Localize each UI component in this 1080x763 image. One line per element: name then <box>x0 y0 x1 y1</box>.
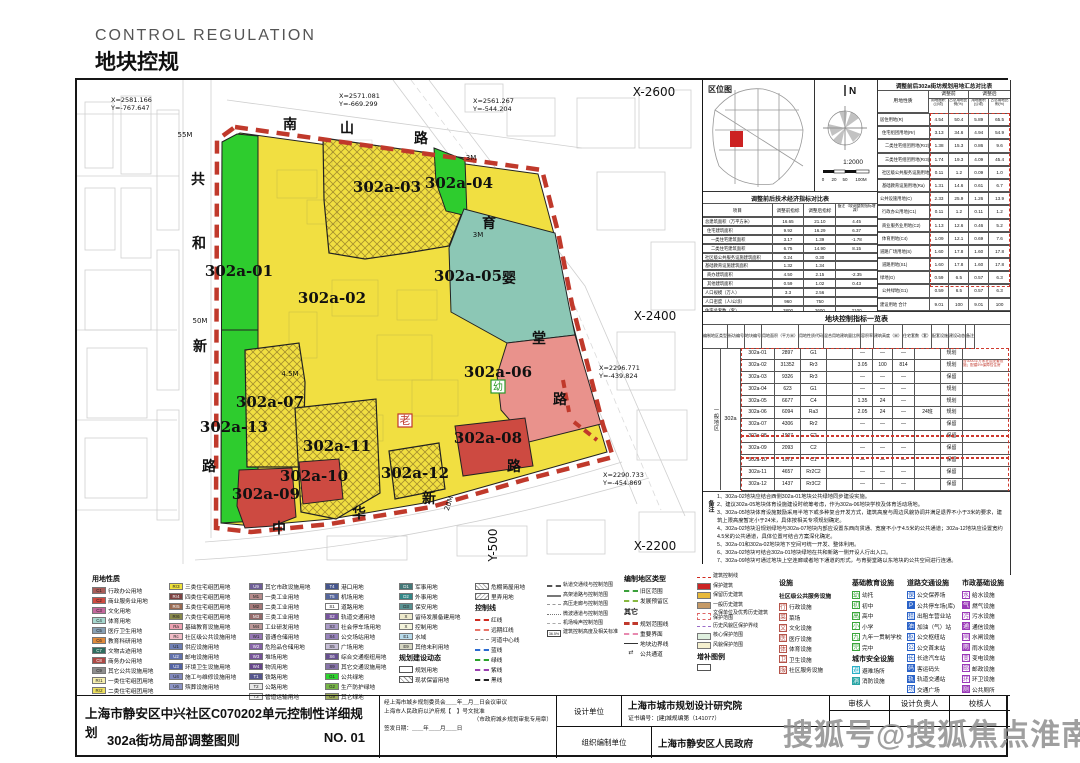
legend-item-label: 公交首末站 <box>917 643 945 652</box>
row-label: 体育用地(C4) <box>878 233 930 245</box>
facility-icon: 卫 <box>779 655 787 663</box>
facility <box>915 419 941 430</box>
legend-item: C6教育科研用地 <box>92 636 168 645</box>
legend-item: 文保单位及优秀历史建筑保护范围 <box>697 611 775 622</box>
traffic-facility-icon: 租 <box>907 612 915 620</box>
landuse-code: C2 <box>801 443 827 454</box>
row-label: 住宅组团用地(Rr) <box>878 127 930 139</box>
legend-item-label: 公交枢纽站 <box>917 632 945 641</box>
legend-item-label: 三类住宅组团用地 <box>185 582 231 591</box>
legend-item: Rc社区级公共设施用地 <box>169 632 247 641</box>
legend-item: 一般历史建筑 <box>697 601 775 609</box>
heritage-swatch <box>697 592 711 599</box>
row-label: 商办建筑面积 <box>703 271 773 279</box>
legend-item: 气燃气设施 <box>962 601 1008 610</box>
legend-item: C4体育用地 <box>92 616 168 625</box>
legend-item: 小小学 <box>852 622 904 631</box>
cell: 1.34 <box>804 262 836 270</box>
notes-list: 1、302a-02地块应结合西侧302a-01地块公共绿地同步建设实施。2、建议… <box>717 494 1007 565</box>
legend-item-label: 变电设施 <box>972 653 995 662</box>
education-facility-icon: 高 <box>852 612 860 620</box>
legend-item-label: 公共停车场(库) <box>917 601 955 610</box>
legend-item: 发展预留区 <box>624 596 696 605</box>
summary-sub-header: 用地面积(公顷) <box>969 99 989 113</box>
table-row: 302a-02 31352 Rr3 3.05 100 814 规划 含3000平… <box>741 360 1011 372</box>
road-label-nanshan: 南 <box>283 116 297 133</box>
table-row: 302a-11 4657 Rr2C2 — — — 保留 <box>741 467 1011 479</box>
table-row: 三类住宅组团用地(Rr3) 1.74 19.3 4.09 45.4 <box>878 153 1010 166</box>
legend-item-label: 危棚简屋用地 <box>491 582 525 591</box>
legend-item: 风貌保护范围 <box>697 641 775 649</box>
parcel-id: 302a-01 <box>741 348 775 359</box>
parcel-area: 1907 <box>775 431 801 442</box>
legend-item-label: 社区级公共设施用地 <box>185 632 236 641</box>
line-swatch <box>547 604 561 605</box>
legend-item: S1道路用地 <box>325 602 397 611</box>
landuse-swatch: X <box>399 613 413 620</box>
table-row: 绿地(G) 0.59 6.5 0.57 6.3 <box>878 271 1010 284</box>
legend-item: M3三类工业用地 <box>249 612 323 621</box>
legend-header: 市政基础设施 <box>962 578 1008 588</box>
legend-item-label: 教育科研用地 <box>108 636 142 645</box>
parcel-table-header: 编制地区类型 街坊编号 地块编号 用地面积（平方米） 用地性质代码 混合用地建筑… <box>703 324 1010 349</box>
road-label-zhonghuaxin: 新 <box>422 490 436 507</box>
column-header: 混合用地建筑量比例 <box>824 325 861 349</box>
row-label: 商业服务业用地(C2) <box>878 220 930 232</box>
mix-ratio <box>827 384 853 395</box>
legend-item-label: 给水设施 <box>972 590 995 599</box>
legend-item-label: 公交场站用地 <box>341 632 375 641</box>
height-limit: — <box>873 431 893 442</box>
legend-item: 地块边界线 <box>624 639 696 648</box>
legend-item-label: 留待发展备建用地 <box>415 612 461 621</box>
landuse-swatch: C2 <box>92 597 106 604</box>
parcel-area: 1437 <box>775 479 801 490</box>
far: — <box>853 479 873 490</box>
far: 1.35 <box>853 396 873 407</box>
legend-item-label: 殡葬设施用地 <box>185 682 219 691</box>
facility <box>915 467 941 478</box>
landuse-swatch: U4 <box>169 673 183 680</box>
remark <box>963 419 1009 430</box>
legend-item-label: 文物古迹用地 <box>108 646 142 655</box>
legend-col-control-2: 轨道交通线与控制范围高架道路与控制范围高压走廊与控制范围微波通道与控制范围机场噪… <box>547 582 623 637</box>
municipal-facility-icon: 污 <box>962 612 970 620</box>
legend-item-label: 长途汽车站 <box>917 653 945 662</box>
landuse-swatch: D3 <box>399 603 413 610</box>
table-row: 基础教育设施用地(Ra) 1.31 14.6 0.61 6.7 <box>878 179 1010 192</box>
page-title: 地块控规 <box>95 46 179 76</box>
legend-item-label: 建筑控制线 <box>713 574 771 580</box>
row-label: 行政办公用地(C1) <box>878 206 930 218</box>
table-row: 人口密度（人/公顷） 960 750 <box>703 297 877 306</box>
table-row: 商办建筑面积 4.50 2.15 -2.35 <box>703 270 877 279</box>
cell: -1.78 <box>836 236 877 244</box>
safety-facility-icon: 消 <box>852 677 860 685</box>
approval-line: （市政府城乡规划审批专用章） <box>384 716 552 725</box>
legend-col-municipal: 市政基础设施 水给水设施气燃气设施污污水设施通通信设施闸水闸设施雨雨水设施变变电… <box>962 577 1008 694</box>
legend-item: S6综合交通枢纽用地 <box>325 652 397 661</box>
cell: 1.60 <box>930 259 950 271</box>
legend-item: 绿线 <box>475 655 545 664</box>
legend-header: 设施 <box>779 578 849 588</box>
parcel-area: 6094 <box>775 407 801 418</box>
page-eyebrow: CONTROL REGULATION <box>95 27 316 45</box>
column-header: 街坊编号 <box>728 325 745 349</box>
table-row: 公共绿地(G1) 0.59 6.5 0.57 6.3 <box>878 284 1010 297</box>
road-label-nanshan: 路 <box>414 130 429 147</box>
landuse-swatch: Ra <box>169 623 183 630</box>
table-row: 其他建筑面积 0.59 1.02 0.43 <box>703 279 877 288</box>
table-row: 人口规模（万人） 3.3 2.56 <box>703 288 877 297</box>
landuse-swatch: Rr3 <box>169 583 183 590</box>
cell <box>836 298 877 306</box>
table-row: 建设用地 合计 9.01 100 9.01 100 <box>878 298 1010 311</box>
legend-item: 码客运码头 <box>907 664 961 673</box>
table-row: 体育用地(C4) 1.09 12.1 0.69 7.6 <box>878 232 1010 245</box>
legend-item-label: 医疗设施 <box>789 634 812 643</box>
landuse-swatch: U9 <box>249 583 263 590</box>
legend-item: 体体育设施 <box>779 644 849 653</box>
landuse-swatch: X <box>399 623 413 630</box>
legend-header: 编制地区类型 <box>624 574 696 584</box>
table-row: 基础教育设施建筑面积 1.32 1.34 <box>703 261 877 270</box>
municipal-facility-icon: 气 <box>962 601 970 609</box>
parcel-label-302a-02: 302a-02 <box>298 289 366 307</box>
facility <box>915 455 941 466</box>
parcel-label-302a-09: 302a-09 <box>232 485 300 503</box>
legend-item-label: 红线 <box>491 615 502 624</box>
legend-item: 轨轨道交通站 <box>907 674 961 683</box>
municipal-facility-icon: 邮 <box>962 664 970 672</box>
road-width-label: 4.5M <box>281 370 298 378</box>
cell: 0.59 <box>930 272 950 284</box>
parcel-area: 623 <box>775 384 801 395</box>
legend-item: X留待发展备建用地 <box>399 612 473 621</box>
column-header: 编制地区类型 <box>703 325 728 349</box>
height-limit: — <box>873 443 893 454</box>
municipal-facility-icon: 变 <box>962 654 970 662</box>
mix-ratio <box>827 372 853 383</box>
north-label: N <box>849 86 856 97</box>
landuse-swatch: W2 <box>249 643 263 650</box>
parcel-id: 302a-12 <box>741 479 775 490</box>
coord-label: X=2290.733 <box>603 471 644 479</box>
location-inset-map: 区位图 <box>703 80 815 192</box>
legend-item: 枢公交枢纽站 <box>907 632 961 641</box>
table-row: 302a-06 6094 Ra3 2.05 24 — 24班 规划 <box>741 407 1011 419</box>
legend-item-label: 其它交通设施用地 <box>341 662 387 671</box>
parcel-302a-08 <box>455 418 533 476</box>
cell: 50.4 <box>949 114 969 126</box>
table-row: 302a-12 1437 Rr3C2 — — — 保留 <box>741 479 1011 491</box>
cell: 0.61 <box>969 180 989 192</box>
legend-item-label: 其他未利用地 <box>415 642 449 651</box>
legend-item-label: 重要界面 <box>640 629 663 638</box>
legend-item-label: 雨水设施 <box>972 643 995 652</box>
heritage-swatch <box>697 583 711 590</box>
row-label: 居住用地(R) <box>878 114 930 126</box>
row-label: 道路广场用地(S) <box>878 246 930 258</box>
cell: 0.11 <box>969 206 989 218</box>
legend-item-label: 地块边界线 <box>640 639 668 648</box>
checker-label: 校核人 <box>950 696 1010 711</box>
far: — <box>853 348 873 359</box>
legend-item: W4物流用地 <box>249 662 323 671</box>
cell: 6.3 <box>989 272 1010 284</box>
parcel-id: 302a-05 <box>741 396 775 407</box>
row-label: 一类住宅建筑面积 <box>703 236 773 244</box>
sheet-number: NO. 01 <box>324 730 365 745</box>
landuse-swatch: U3 <box>169 663 183 670</box>
legend-item-label: 保留历史建筑 <box>713 593 771 599</box>
legend-item: 黑线 <box>475 675 545 684</box>
landuse-swatch: C4 <box>92 617 106 624</box>
municipal-facility-icon: 闸 <box>962 633 970 641</box>
landuse-swatch: C1 <box>92 587 106 594</box>
landuse-code: Rr3 <box>801 372 827 383</box>
row-label: 公共绿地(G1) <box>878 285 930 297</box>
parcel-label-302a-08: 302a-08 <box>454 429 522 447</box>
traffic-facility-icon: P <box>907 601 915 609</box>
scale-tick: 0 <box>822 177 825 182</box>
legend-item: Rr5五类住宅组团用地 <box>169 602 247 611</box>
location-inset-title: 区位图 <box>708 84 732 94</box>
landuse-code: Rr2 <box>801 419 827 430</box>
cell: 0.11 <box>930 167 950 179</box>
parcel-table-title: 地块控制指标一览表 <box>703 312 1010 324</box>
traffic-facility-icon: 公 <box>907 643 915 651</box>
legend-item: U6殡葬设施用地 <box>169 682 247 691</box>
legend-item: 卫卫生设施 <box>779 655 849 664</box>
legend-item-label: 六类住宅组团用地 <box>185 612 231 621</box>
legend-item: 红线 <box>475 615 545 624</box>
legend-header: 基础教育设施 <box>852 578 904 588</box>
landuse-swatch: E1 <box>399 633 413 640</box>
legend-item: 消消防设施 <box>852 676 904 685</box>
legend-item-label: 生产防护绿地 <box>341 682 375 691</box>
scale-text: 1:2000 <box>843 159 863 166</box>
cell: 1.26 <box>969 193 989 205</box>
parcel-id: 302a-07 <box>741 419 775 430</box>
tech-header: 备注（较调整前指标增减） <box>836 204 877 217</box>
mix-ratio <box>827 396 853 407</box>
table-row: 社区级公共服务设施建筑面积 0.24 0.30 <box>703 253 877 262</box>
legend-item-label: 外事用地 <box>415 592 438 601</box>
row-label: 住宅建筑面积 <box>703 227 773 235</box>
cell: 0.57 <box>969 272 989 284</box>
legend-item-label: 公交保养场 <box>917 590 945 599</box>
legend-item-label: 施工与维修设施用地 <box>185 672 236 681</box>
legend-item: T2公路用地 <box>249 682 323 691</box>
grid-label: X-2400 <box>634 309 677 323</box>
line-swatch <box>475 669 489 671</box>
legend-item: 保公交保养场 <box>907 590 961 599</box>
legend-item: 公公交首末站 <box>907 643 961 652</box>
legend-item: M1一类工业用地 <box>249 592 323 601</box>
legend-item-label: 商务办公用地 <box>108 656 142 665</box>
landuse-swatch: U6 <box>169 683 183 690</box>
legend-header: 道路交通设施 <box>907 578 961 588</box>
line-swatch <box>475 629 489 631</box>
status: 保留 <box>941 431 963 442</box>
parcel-id: 302a-03 <box>741 372 775 383</box>
legend-item: 核心保护范围 <box>697 632 775 640</box>
landuse-swatch: Rc <box>169 633 183 640</box>
landuse-swatch: M3 <box>249 613 263 620</box>
legend-item-label: 菜场 <box>789 613 800 622</box>
cell: 17.8 <box>989 246 1010 258</box>
legend-header: 规划建设动态 <box>399 653 473 663</box>
table-row: 302a-08 1907 C2 — — — 保留 <box>741 431 1011 443</box>
legend-item-label: 商业服务业用地 <box>108 596 148 605</box>
legend-item: 邮邮政设施 <box>962 664 1008 673</box>
legend-item-label: 保安用地 <box>415 602 438 611</box>
education-facility-icon: 初 <box>852 601 860 609</box>
parcel-id: 302a-10 <box>741 455 775 466</box>
legend-item-label: 一类工业用地 <box>265 592 299 601</box>
cell: 6.37 <box>836 227 877 235</box>
approval-line: 经上海市城乡规划委员会＿＿年＿月＿日会议审议 <box>384 699 552 708</box>
legend-item-label: 核心保护范围 <box>713 633 771 639</box>
facility-icon: 体 <box>779 645 787 653</box>
cell: 34.6 <box>949 127 969 139</box>
far: — <box>853 455 873 466</box>
marker-kindergarten: 幼 <box>493 380 503 393</box>
pattern-swatch <box>475 583 489 590</box>
legend-col-areatype: 编制地区类型 旧区范围发展预留区 其它 规划范围线重要界面地块边界线⇄公共通道 <box>624 573 696 658</box>
coord-label: X=2561.267 <box>473 97 514 105</box>
landuse-swatch: Rr5 <box>169 603 183 610</box>
legend-item: 轨道交通线与控制范围 <box>547 582 623 590</box>
legend-item: W2危险品仓储用地 <box>249 642 323 651</box>
line-swatch <box>624 622 638 625</box>
cell: 100 <box>989 299 1010 311</box>
summary-rows: 居住用地(R) 4.54 50.4 5.89 65.5 住宅组团用地(Rr) 3… <box>878 113 1010 312</box>
legend-col-traffic: 道路交通设施 保公交保养场P公共停车场(库)租出租车营业站油加油（气）站枢公交枢… <box>907 577 961 694</box>
legend-item-label: 公路用地 <box>265 682 288 691</box>
status: 规划 <box>941 360 963 371</box>
table-row: 二类住宅组团用地(Rr2) 1.38 15.3 0.86 9.6 <box>878 139 1010 152</box>
heritage-swatch <box>697 602 711 609</box>
legend-item: 雨雨水设施 <box>962 643 1008 652</box>
legend-item-label: 规划用地 <box>415 665 438 674</box>
row-label: 二类住宅组团用地(Rr2) <box>878 140 930 152</box>
cell: 1.60 <box>969 246 989 258</box>
landuse-swatch: S2 <box>325 613 339 620</box>
legend-item-label: 紫线 <box>491 665 502 674</box>
remark <box>963 372 1009 383</box>
parcel-area: 4306 <box>775 419 801 430</box>
road-label-gonghexin: 新 <box>193 338 207 355</box>
landuse-code: C4 <box>801 396 827 407</box>
legend-item-label: 其它公共设施用地 <box>108 666 154 675</box>
legend-item-label: 一类住宅组团用地 <box>108 676 154 685</box>
legend-item: 保护建筑 <box>697 582 775 590</box>
far: — <box>853 431 873 442</box>
height-limit: — <box>873 348 893 359</box>
coord-label: X=2581.166 <box>111 96 152 104</box>
legend-item <box>697 664 775 672</box>
legend-item: 医医疗设施 <box>779 634 849 643</box>
parcel-id: 302a-04 <box>741 384 775 395</box>
plan-title-line2: 302a街坊局部调整图则 <box>107 730 240 749</box>
landuse-swatch: T2 <box>249 683 263 690</box>
height-limit: — <box>873 372 893 383</box>
parcel-area: 1072 <box>775 455 801 466</box>
legend-item: 远期红线 <box>475 625 545 634</box>
legend-item-label: 现状保留用地 <box>415 675 449 684</box>
compass-box: N 1:2000 <box>815 80 878 192</box>
scale-tick: 100M <box>855 177 867 182</box>
facility-icon: 医 <box>779 634 787 642</box>
legend-item-label: 邮政设施 <box>972 664 995 673</box>
parcel-label-302a-04: 302a-04 <box>425 174 493 192</box>
legend-item-label: 污水设施 <box>972 611 995 620</box>
heritage-swatch <box>697 633 711 640</box>
parcel-area: 31352 <box>775 360 801 371</box>
line-swatch <box>624 633 638 635</box>
landuse-swatch: W4 <box>249 663 263 670</box>
legend-item: S5广场用地 <box>325 642 397 651</box>
table-row: 302a-07 4306 Rr2 — — — 保留 <box>741 419 1011 431</box>
far: — <box>853 443 873 454</box>
coord-label: Y=-439.824 <box>598 372 638 380</box>
legend-item: C2商业服务业用地 <box>92 596 168 605</box>
legend-item: 完完中 <box>852 643 904 652</box>
legend-header: 城市安全设施 <box>852 654 904 664</box>
summary-sub-header: 用地面积(公顷) <box>929 99 949 113</box>
row-label: 道路用地(S1) <box>878 259 930 271</box>
height-limit: — <box>873 384 893 395</box>
cell: 3.13 <box>930 127 950 139</box>
table-row: 302a-04 623 G1 — — — 规划 <box>741 384 1011 396</box>
landuse-swatch: W3 <box>249 653 263 660</box>
cell: 25.9 <box>949 193 969 205</box>
legend-item-label: 行政设施 <box>789 602 812 611</box>
cell: 6.5 <box>949 272 969 284</box>
table-row: 302a-03 9326 Rr3 — — — 保留 <box>741 372 1011 384</box>
landuse-code: C1 <box>801 455 827 466</box>
legend-item-label: 高压走廊与控制范围 <box>563 602 621 608</box>
row-label: 社区级公共服务设施建筑面积 <box>703 254 773 262</box>
landuse-code: Rr3 <box>801 360 827 371</box>
line-swatch <box>547 595 561 597</box>
legend-item: 避避难场所 <box>852 666 904 675</box>
cell: 1.2 <box>989 206 1010 218</box>
mix-ratio <box>827 467 853 478</box>
road-width-label: 3M <box>466 154 477 162</box>
cell <box>836 289 877 297</box>
facility-icon: 服 <box>779 666 787 674</box>
legend-item: 重要界面 <box>624 629 696 638</box>
legend-item: Rr2二类住宅组团用地 <box>92 686 168 695</box>
table-row: 社区级公共服务设施用地(Rc) 0.11 1.2 0.09 1.0 <box>878 166 1010 179</box>
parcel-area: 9326 <box>775 372 801 383</box>
far: — <box>853 384 873 395</box>
facility <box>915 372 941 383</box>
cell: 0.43 <box>836 280 877 288</box>
legend-item: ⇄公共通道 <box>624 649 696 658</box>
coord-label: X=2571.081 <box>339 92 380 100</box>
status: 保留 <box>941 443 963 454</box>
remark <box>963 455 1009 466</box>
grid-label: Y-500 <box>486 528 500 562</box>
cell: 5.2 <box>989 220 1010 232</box>
coord-label: X=2296.771 <box>599 364 640 372</box>
line-swatch <box>547 623 561 624</box>
height-limit: — <box>873 455 893 466</box>
